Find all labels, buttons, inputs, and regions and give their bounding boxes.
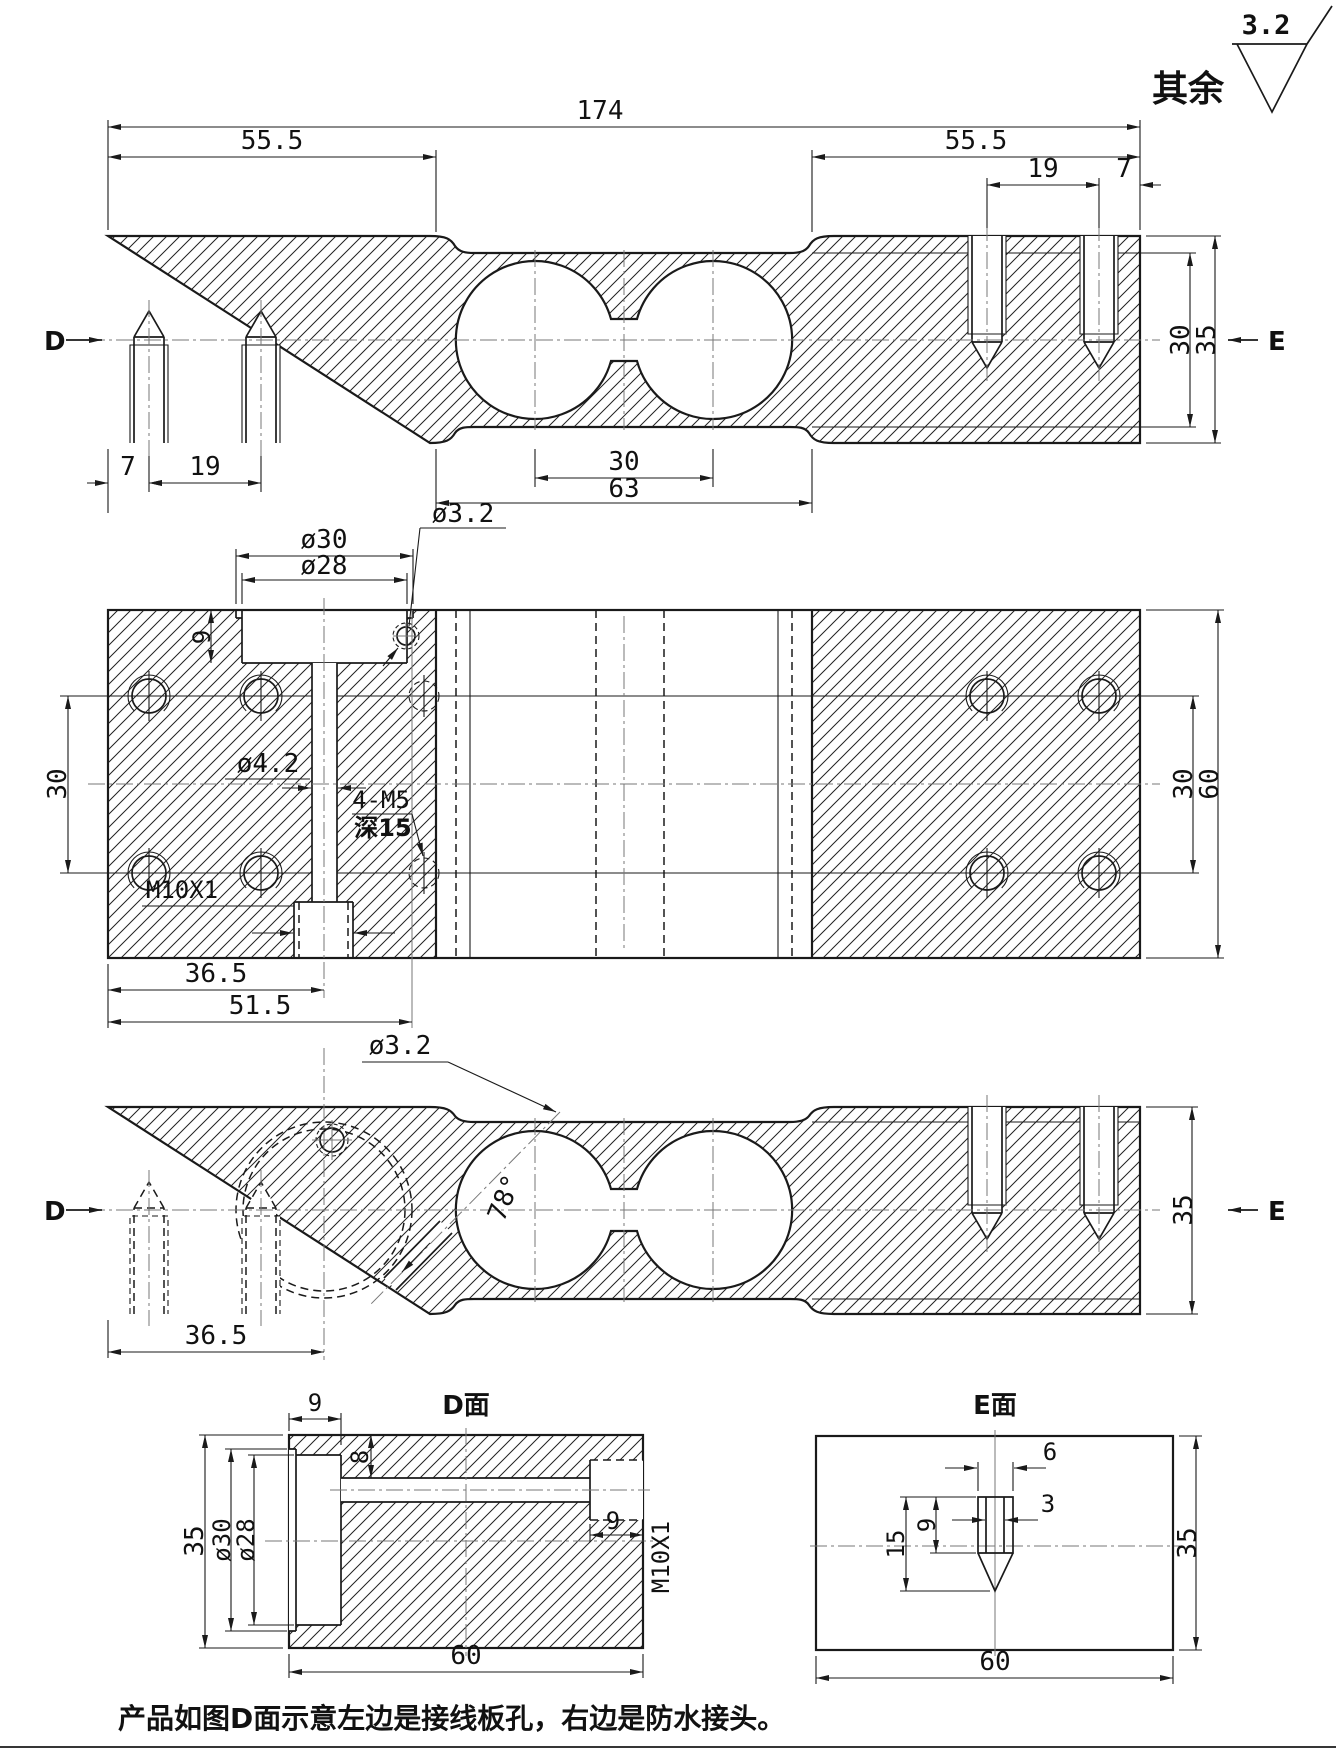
dim-boss-inner: ø28 [301, 551, 348, 581]
surface-roughness-value: 3.2 [1242, 10, 1291, 41]
section-label-d: D [44, 327, 66, 357]
dim-hole-offset: 51.5 [229, 991, 292, 1021]
dim-left-rows: 30 [43, 768, 73, 799]
section-label-d: D [44, 1197, 66, 1227]
dim-boss-depth: 9 [308, 1389, 322, 1417]
dim-gland-depth: 9 [606, 1507, 620, 1535]
dim-height: 35 [1173, 1527, 1203, 1558]
dim-cable-hole: ø3.2 [369, 1031, 432, 1061]
dim-cable-hole: ø3.2 [432, 499, 495, 529]
dim-channel: ø4.2 [237, 749, 300, 779]
view-lower-section: ø3.2 78° 36.5 35 D E [44, 1031, 1286, 1360]
dim-right-edge: 7 [1116, 154, 1132, 184]
dim-left-spacing: 19 [189, 452, 220, 482]
dim-width: 60 [450, 1641, 481, 1671]
dim-right-end: 55.5 [945, 126, 1008, 156]
dim-hole-centers: 30 [608, 447, 639, 477]
dim-gland-offset: 36.5 [185, 959, 248, 989]
dim-left-edge: 7 [120, 452, 136, 482]
note-thread-depth: 深15 [354, 814, 411, 842]
dim-total-length: 174 [577, 96, 624, 126]
product-note: 产品如图D面示意左边是接线板孔，右边是防水接头。 [118, 1702, 785, 1735]
dim-recess-width: 63 [608, 474, 639, 504]
dim-boss-inner: ø28 [232, 1518, 260, 1561]
view-d-title: D面 [442, 1391, 490, 1421]
dim-left-end: 55.5 [241, 126, 304, 156]
dim-height: 35 [1169, 1194, 1199, 1225]
section-label-e: E [1268, 1197, 1286, 1227]
dim-width: 60 [979, 1647, 1010, 1677]
dim-outer-height: 35 [1192, 324, 1222, 355]
view-top-section: 174 55.5 55.5 19 7 7 19 30 63 30 35 D E [44, 96, 1286, 513]
view-d-face: D面 35 ø30 ø28 9 8 9 M10X1 60 [180, 1389, 675, 1678]
engineering-drawing: 3.2 其余 174 55.5 55.5 19 7 7 19 30 63 30 … [0, 0, 1336, 1752]
dim-gland-offset: 36.5 [185, 1321, 248, 1351]
dim-height: 35 [180, 1525, 210, 1556]
surface-finish-symbol: 3.2 其余 [1152, 6, 1332, 112]
dim-channel-top: 8 [346, 1450, 374, 1464]
dim-boss-depth: 9 [188, 630, 216, 644]
surface-roughness-scope: 其余 [1152, 68, 1225, 110]
note-thread: 4-M5 [352, 786, 410, 814]
dim-hole-outer: 6 [1043, 1438, 1057, 1466]
dim-hole-depth: 9 [913, 1518, 941, 1532]
dim-gland-thread: M10X1 [146, 876, 218, 904]
view-e-face: E面 6 3 9 15 35 60 [810, 1391, 1203, 1684]
view-plan: ø30 ø28 ø3.2 9 30 ø4.2 4-M5 深15 M10X1 30… [43, 499, 1225, 1028]
view-e-title: E面 [973, 1391, 1017, 1421]
drawing-sheet: 3.2 其余 174 55.5 55.5 19 7 7 19 30 63 30 … [0, 0, 1336, 1752]
section-label-e: E [1268, 327, 1286, 357]
dim-gland-thread: M10X1 [647, 1521, 675, 1593]
dim-hole-inner: 3 [1041, 1490, 1055, 1518]
dim-right-spacing: 19 [1027, 154, 1058, 184]
dim-plan-width: 60 [1195, 768, 1225, 799]
dim-total-depth: 15 [882, 1530, 910, 1559]
